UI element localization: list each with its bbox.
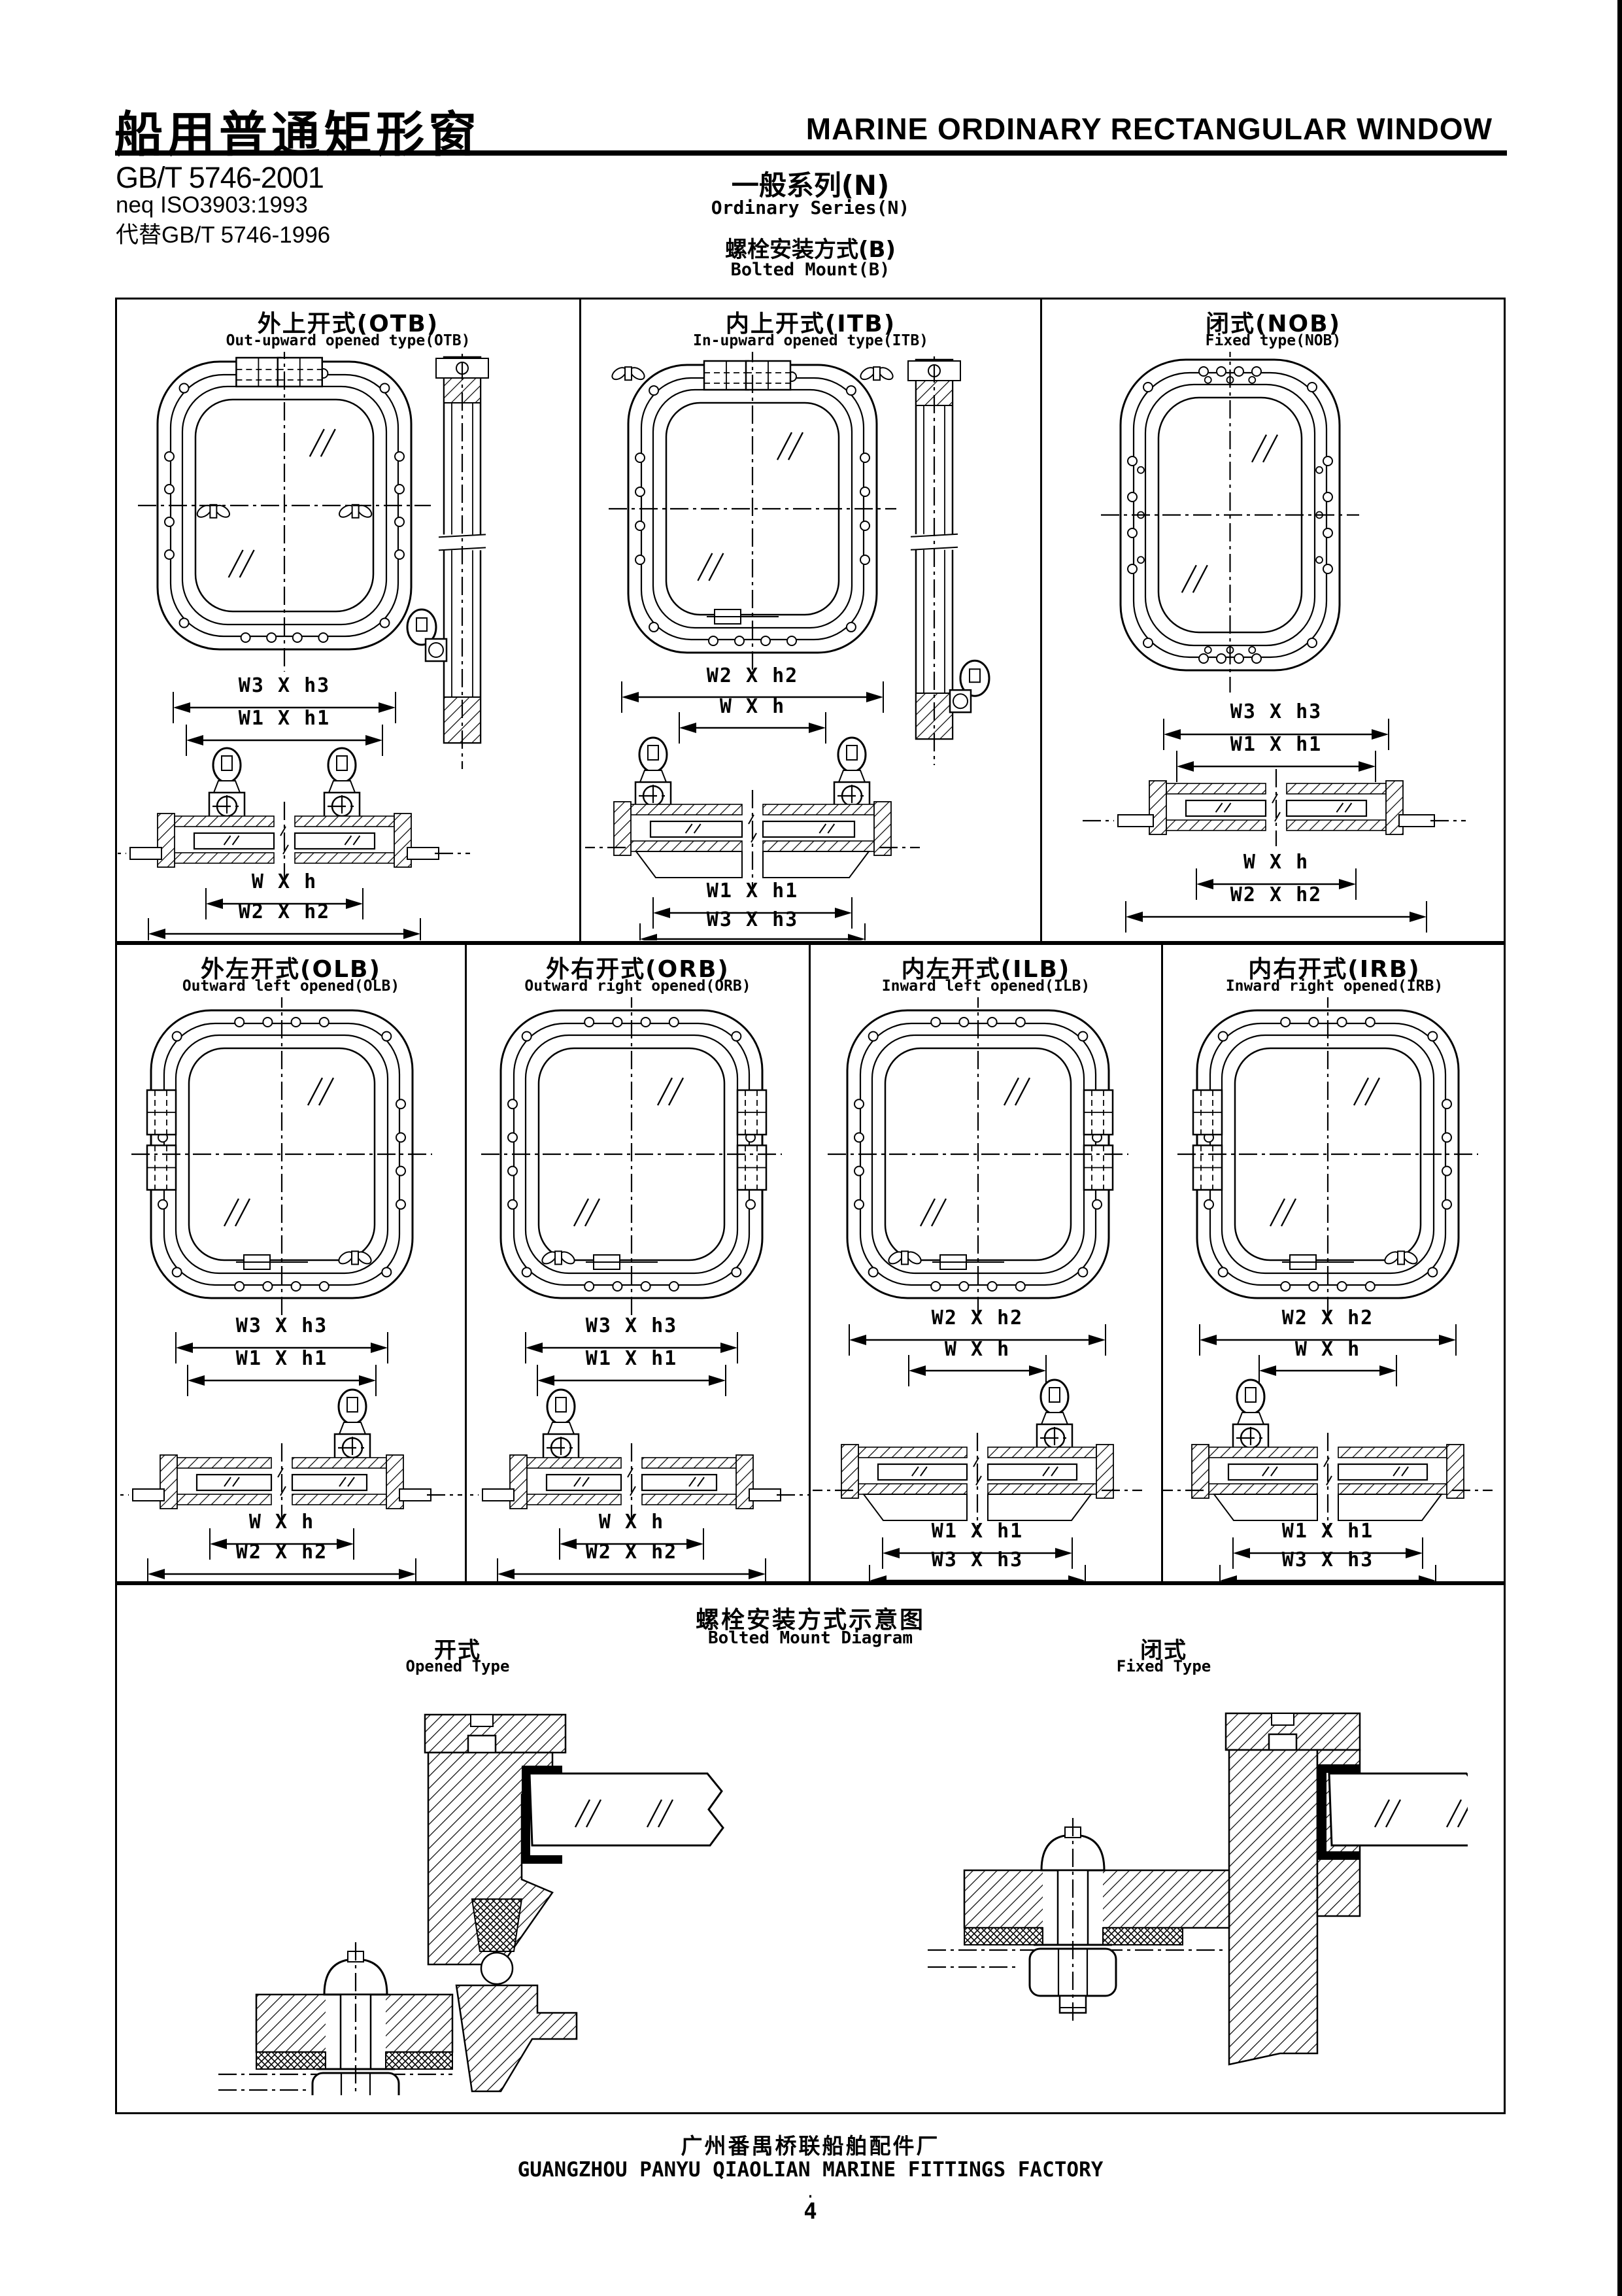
dim-label: W2 X h2	[239, 900, 330, 923]
eye-bolt	[335, 1390, 370, 1462]
mount-type-chinese: 螺栓安装方式(B)	[115, 231, 1506, 264]
nob-drawing: W3 X h3W1 X h1W X hW2 X h2	[1042, 352, 1504, 940]
dim-label: W3 X h3	[236, 1314, 328, 1337]
window-front-view	[1101, 352, 1359, 693]
dim-label: W2 X h2	[932, 1307, 1023, 1329]
dim-label: W1 X h1	[236, 1347, 328, 1370]
olb-drawing: W3 X h3W1 X h1W X hW2 X h2	[117, 997, 465, 1581]
mount-type-english: Bolted Mount(B)	[115, 260, 1506, 280]
cell-title-en: Fixed type(NOB)	[1042, 332, 1504, 349]
orb-drawing: W3 X h3W1 X h1W X hW2 X h2	[467, 997, 809, 1581]
cell-title-en: Inward right opened(IRB)	[1163, 978, 1506, 995]
dim-label: W3 X h3	[1230, 700, 1322, 723]
factory-name-english: GUANGZHOU PANYU QIAOLIAN MARINE FITTINGS…	[115, 2158, 1506, 2182]
fixed-type-section-diagram	[919, 1708, 1468, 2095]
dim-label: W X h	[945, 1338, 1010, 1361]
dim-label: W2 X h2	[586, 1541, 677, 1564]
side-section-view	[908, 352, 989, 765]
catalog-page: 船用普通矩形窗 MARINE ORDINARY RECTANGULAR WIND…	[0, 0, 1622, 2296]
series-name-english: Ordinary Series(N)	[115, 197, 1506, 218]
fixed-type-section	[928, 1713, 1468, 2065]
opened-type-section	[218, 1715, 723, 2095]
eye-bolt	[209, 748, 245, 820]
eye-bolt	[1233, 1380, 1268, 1452]
eye-bolt	[1037, 1380, 1072, 1452]
side-section-view	[407, 352, 488, 769]
window-type-cell-orb: 外右开式(ORB) Outward right opened(ORB) W3 X…	[467, 945, 809, 1581]
window-front-view	[1177, 997, 1478, 1320]
dim-label: W1 X h1	[586, 1347, 677, 1370]
window-front-view	[609, 352, 896, 675]
opened-type-label-en: Opened Type	[366, 1657, 549, 1675]
dim-label: W2 X h2	[1230, 883, 1322, 906]
window-front-view	[131, 997, 432, 1320]
cross-section	[1083, 769, 1466, 846]
dim-label: W3 X h3	[586, 1314, 677, 1337]
cell-title-en: In-upward opened type(ITB)	[581, 332, 1040, 349]
dim-label: W1 X h1	[1230, 733, 1322, 756]
header-rule	[115, 150, 1507, 156]
ilb-drawing: W2 X h2W X hW1 X h1W3 X h3	[811, 997, 1161, 1581]
window-type-cell-nob: 闭式(NOB) Fixed type(NOB) W3 X h3W1 X h1W …	[1042, 300, 1504, 940]
dim-label: W2 X h2	[1282, 1307, 1374, 1329]
eye-bolt	[834, 738, 870, 810]
cell-title-en: Outward right opened(ORB)	[467, 978, 809, 995]
otb-drawing: W3 X h3W1 X h1W X hW2 X h2	[117, 352, 579, 940]
dim-label: W3 X h3	[1282, 1549, 1374, 1571]
cross-section	[1163, 1433, 1493, 1535]
window-type-cell-olb: 外左开式(OLB) Outward left opened(OLB) W3 X …	[117, 945, 465, 1581]
window-front-view	[138, 352, 431, 672]
page-title-english: MARINE ORDINARY RECTANGULAR WINDOW	[806, 111, 1493, 146]
dim-label: W2 X h2	[236, 1541, 328, 1564]
window-front-view	[828, 997, 1128, 1320]
itb-drawing: W2 X h2W X hW1 X h1W3 X h3	[581, 352, 1040, 940]
dim-label: W X h	[1295, 1338, 1360, 1361]
dim-label: W3 X h3	[707, 908, 798, 931]
cross-section	[585, 790, 920, 892]
page-number: 4	[115, 2199, 1506, 2225]
fixed-type-label-en: Fixed Type	[1072, 1657, 1255, 1675]
window-type-cell-itb: 内上开式(ITB) In-upward opened type(ITB) W2 …	[581, 300, 1040, 940]
eye-bolt	[543, 1390, 579, 1462]
window-type-cell-otb: 外上开式(OTB) Out-upward opened type(OTB) W3…	[117, 300, 579, 940]
eye-bolt	[324, 748, 360, 820]
dim-label: W3 X h3	[239, 674, 330, 697]
eye-bolt	[635, 738, 671, 810]
window-front-view	[481, 997, 782, 1320]
opened-type-section-diagram	[196, 1708, 745, 2095]
scan-edge-strip	[1617, 0, 1622, 2296]
window-type-cell-irb: 内右开式(IRB) Inward right opened(IRB) W2 X …	[1163, 945, 1506, 1581]
window-type-cell-ilb: 内左开式(ILB) Inward left opened(ILB) W2 X h…	[811, 945, 1161, 1581]
dim-label: W1 X h1	[239, 707, 330, 730]
dim-label: W X h	[720, 695, 785, 718]
cross-section	[813, 1433, 1142, 1535]
cross-section	[117, 802, 470, 879]
cell-title-en: Inward left opened(ILB)	[811, 978, 1161, 995]
dim-label: W X h	[1243, 851, 1309, 874]
cell-title-en: Outward left opened(OLB)	[117, 978, 465, 995]
irb-drawing: W2 X h2W X hW1 X h1W3 X h3	[1163, 997, 1506, 1581]
cell-title-en: Out-upward opened type(OTB)	[117, 332, 579, 349]
dim-label: W2 X h2	[707, 664, 798, 687]
dim-label: W3 X h3	[932, 1549, 1023, 1571]
cross-section	[467, 1443, 809, 1520]
factory-name-chinese: 广州番禺桥联船舶配件厂	[115, 2129, 1506, 2160]
bolted-mount-diagram-title-en: Bolted Mount Diagram	[115, 1628, 1506, 1648]
cross-section	[117, 1443, 462, 1520]
